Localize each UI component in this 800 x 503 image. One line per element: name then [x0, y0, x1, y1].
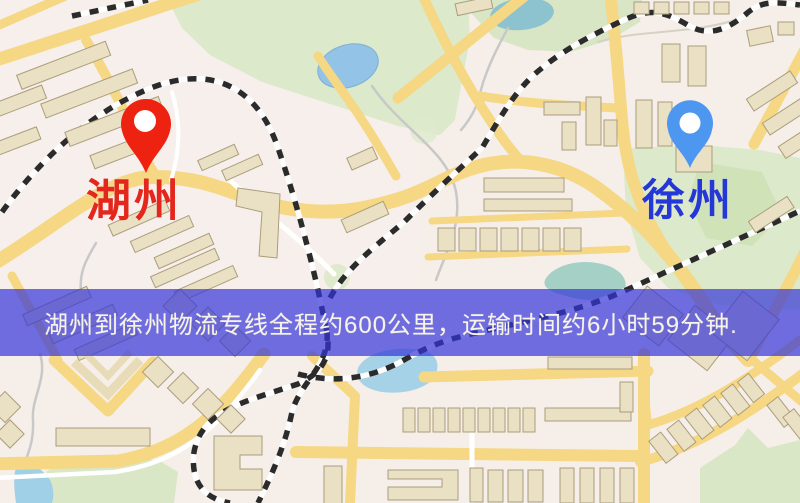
- map-canvas: [0, 0, 800, 503]
- destination-label: 徐州: [642, 180, 734, 223]
- origin-label: 湖州: [86, 178, 182, 223]
- route-info-banner: 湖州到徐州物流专线全程约600公里，运输时间约6小时59分钟.: [0, 289, 800, 356]
- map-image: 湖州到徐州物流专线全程约600公里，运输时间约6小时59分钟. 湖州 徐州: [0, 0, 800, 503]
- route-info-text: 湖州到徐州物流专线全程约600公里，运输时间约6小时59分钟.: [0, 305, 738, 340]
